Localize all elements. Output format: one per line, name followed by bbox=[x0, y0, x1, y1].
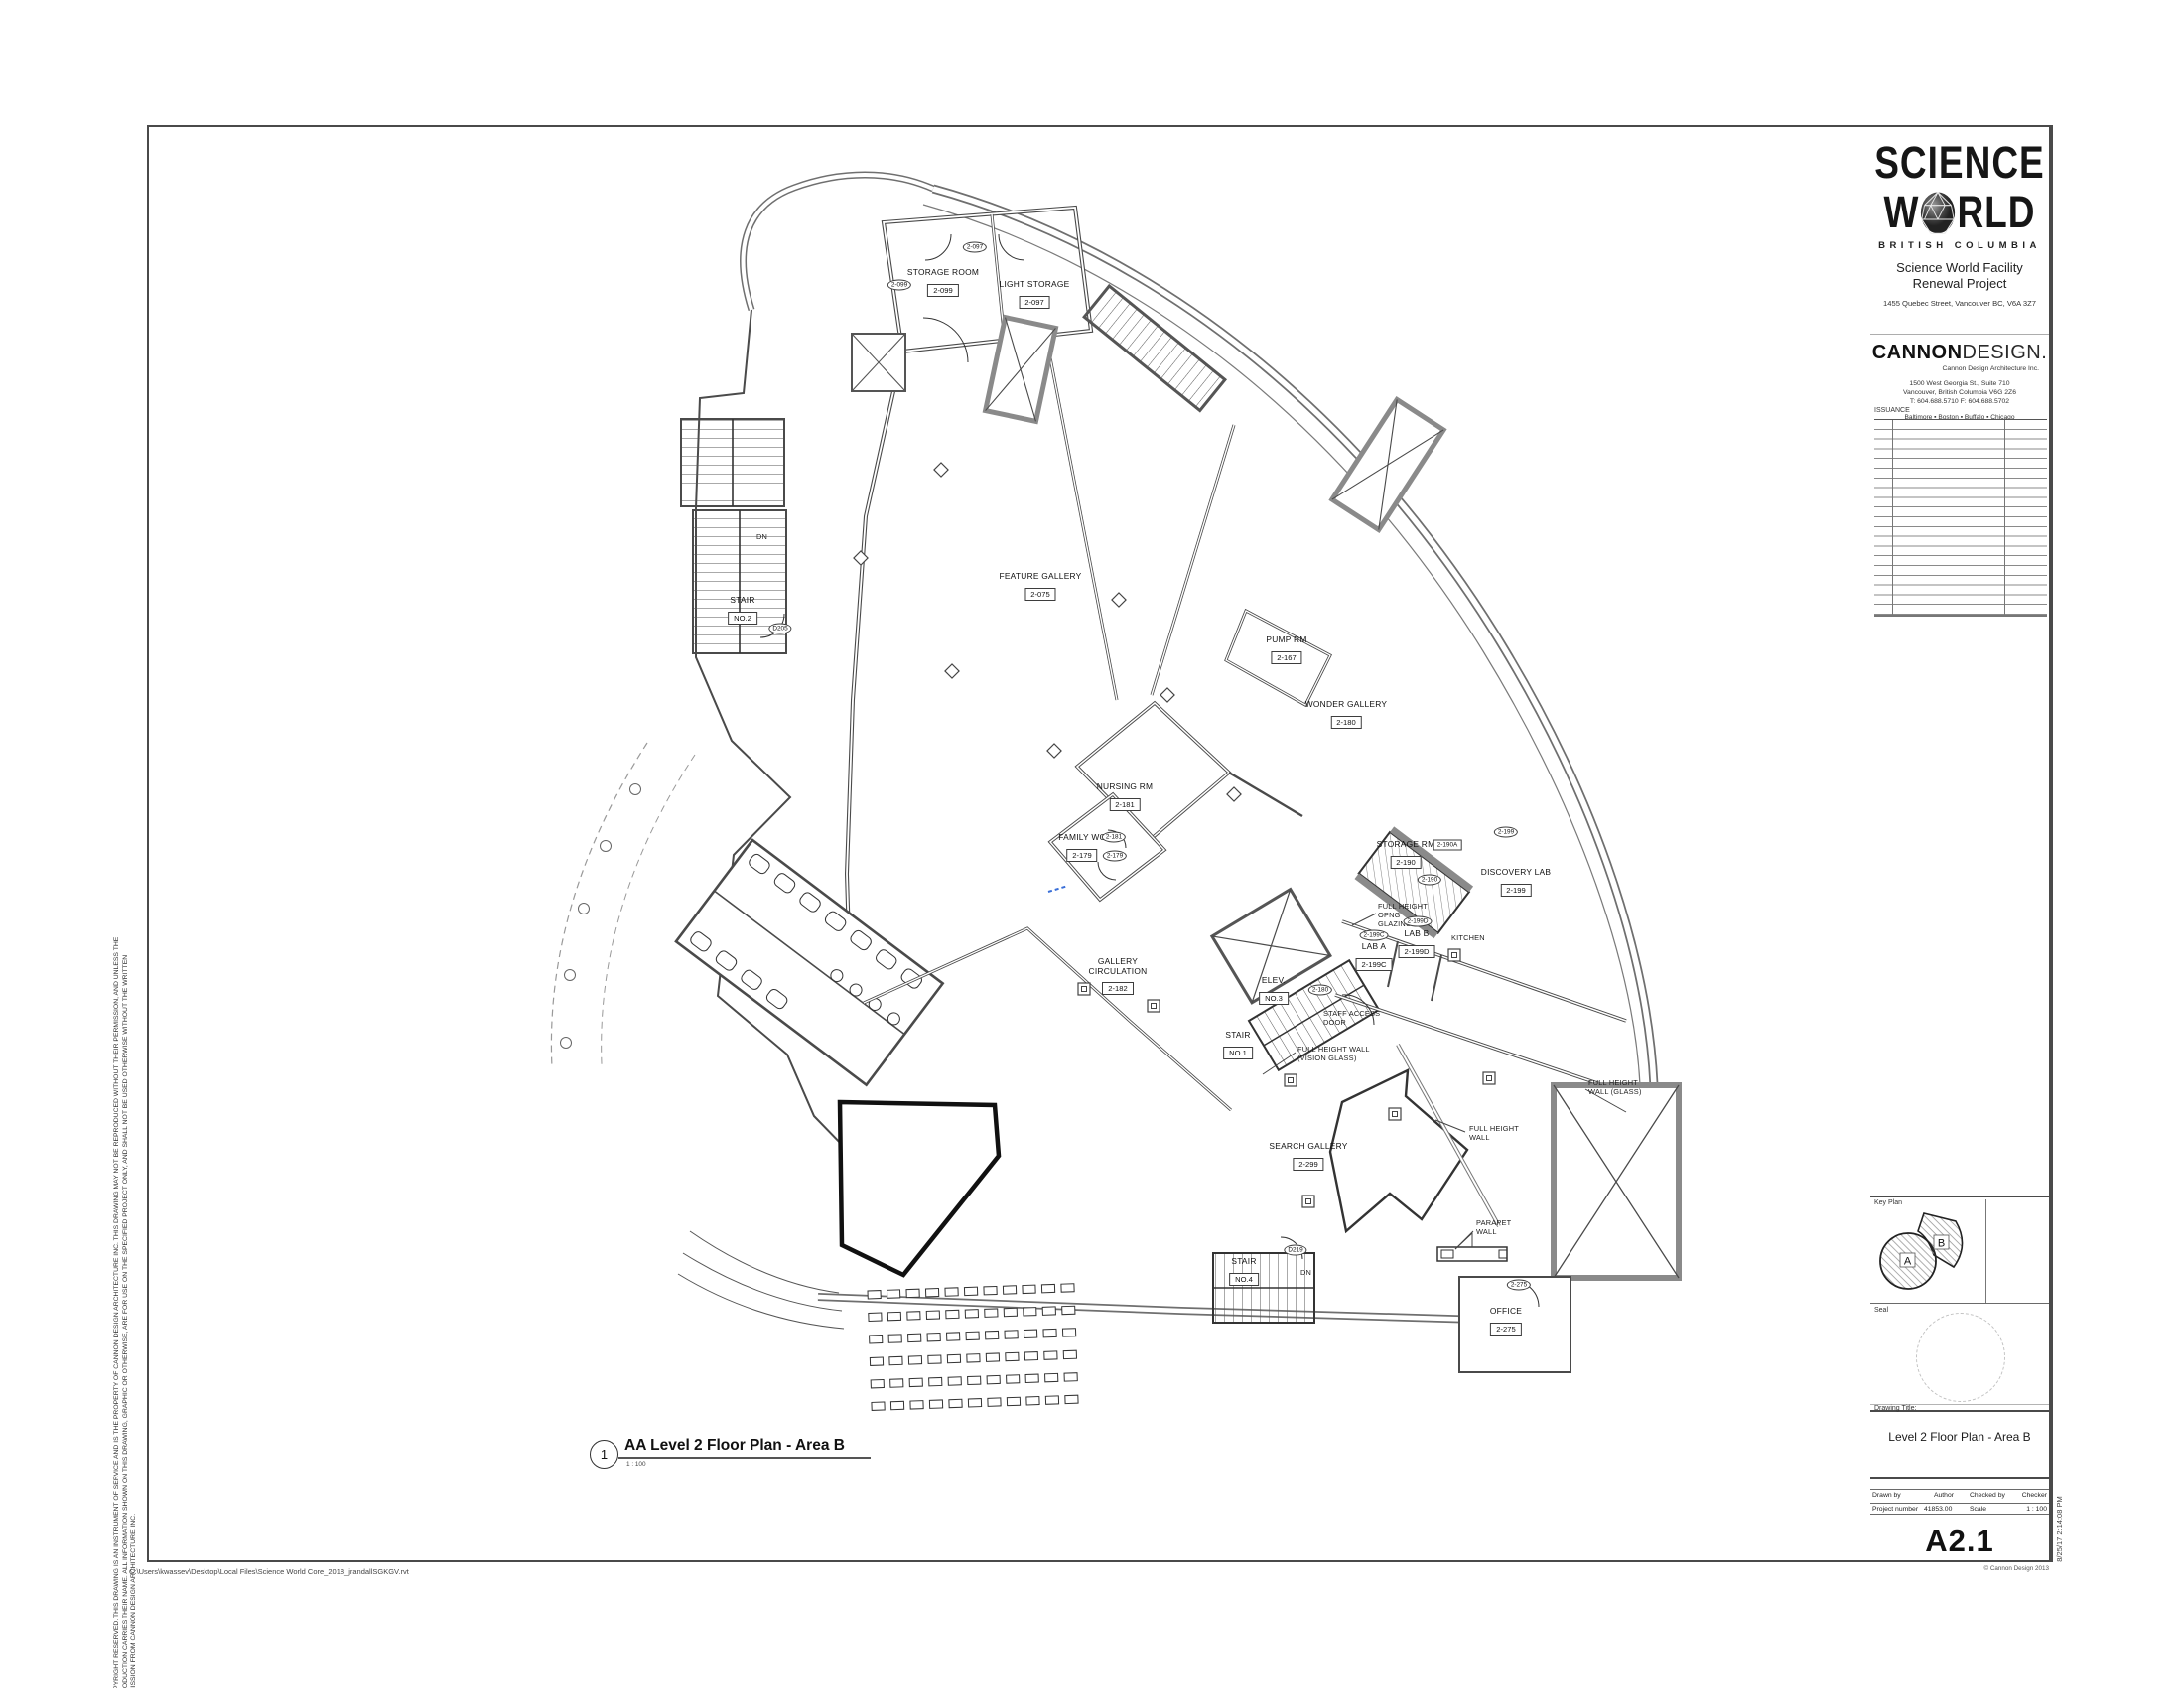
room-name: DISCOVERY LAB bbox=[1481, 868, 1551, 878]
note-label: KITCHEN bbox=[1451, 933, 1485, 942]
geodesic-dome-icon bbox=[1920, 191, 1956, 234]
firm-address-line1: 1500 West Georgia St., Suite 710 bbox=[1870, 379, 2049, 388]
room-number-tag: NO.3 bbox=[1259, 992, 1289, 1005]
room-label: STORAGE ROOM2-099 bbox=[907, 268, 979, 298]
room-name: LAB B bbox=[1399, 929, 1435, 939]
room-label: ELEV.NO.3 bbox=[1259, 976, 1289, 1006]
project-number-label: Project number bbox=[1872, 1506, 1924, 1513]
key-plan-label-b: B bbox=[1938, 1238, 1945, 1250]
room-name: NURSING RM bbox=[1097, 782, 1153, 792]
door-number-tag: 2-097 bbox=[963, 242, 987, 253]
room-number-tag: 2-099 bbox=[927, 284, 958, 297]
room-number-tag: NO.2 bbox=[728, 612, 757, 625]
room-number-tag: 2-167 bbox=[1271, 651, 1301, 664]
room-number-tag: NO.4 bbox=[1229, 1273, 1259, 1286]
room-number-tag: 2-097 bbox=[1019, 296, 1049, 309]
room-label: GALLERY CIRCULATION2-182 bbox=[1072, 957, 1163, 996]
room-name: ELEV. bbox=[1259, 976, 1289, 986]
room-number-tag: 2-181 bbox=[1109, 798, 1140, 811]
room-number-tag: 2-275 bbox=[1490, 1323, 1521, 1336]
cannondesign-logo: CANNONDESIGN. bbox=[1870, 342, 2049, 364]
note-label: FULL HEIGHTWALL (GLASS) bbox=[1588, 1078, 1642, 1096]
drawing-title-label: Drawing Title: bbox=[1870, 1405, 1916, 1412]
project-address: 1455 Quebec Street, Vancouver BC, V6A 3Z… bbox=[1870, 299, 2049, 308]
project-name-line2: Renewal Project bbox=[1870, 276, 2049, 292]
room-name: STORAGE RM bbox=[1377, 840, 1435, 850]
room-name: GALLERY CIRCULATION bbox=[1072, 957, 1163, 976]
science-world-logo-line1: SCIENCE bbox=[1870, 139, 2049, 188]
plan-labels-layer: STORAGE ROOM2-099LIGHT STORAGE2-097FEATU… bbox=[0, 0, 2184, 1688]
room-label: LAB B2-199D bbox=[1399, 929, 1435, 959]
drawing-title-block: Drawing Title: Level 2 Floor Plan - Area… bbox=[1870, 1404, 2049, 1444]
room-label: NURSING RM2-181 bbox=[1097, 782, 1153, 812]
room-name: OFFICE bbox=[1490, 1307, 1522, 1317]
note-label: DN bbox=[1300, 1268, 1311, 1277]
client-logo-block: SCIENCE W RLD BRITISH COLUMBIA Science W… bbox=[1870, 139, 2049, 308]
door-number-tag: 2-180 bbox=[1308, 985, 1332, 996]
note-label: DN bbox=[756, 532, 767, 541]
room-label: STAIRNO.4 bbox=[1229, 1257, 1259, 1287]
door-number-tag: 2-199C bbox=[1360, 930, 1389, 941]
project-number-value: 41853.00 bbox=[1924, 1506, 1970, 1513]
scale-label: Scale bbox=[1970, 1506, 2009, 1513]
room-label: DISCOVERY LAB2-199 bbox=[1481, 868, 1551, 898]
room-name: FEATURE GALLERY bbox=[999, 572, 1081, 582]
room-number-tag: 2-199D bbox=[1399, 945, 1435, 958]
drawn-by-label: Drawn by bbox=[1872, 1492, 1918, 1499]
room-label: STAIRNO.2 bbox=[728, 596, 757, 626]
note-label: FULL HEIGHT WALL(VISION GLASS) bbox=[1297, 1045, 1370, 1062]
issuance-table bbox=[1874, 419, 2047, 617]
room-name: LIGHT STORAGE bbox=[1000, 280, 1070, 290]
seal-circle bbox=[1916, 1313, 2005, 1402]
room-label: STAIRNO.1 bbox=[1223, 1031, 1253, 1060]
scale-value: 1 : 100 bbox=[2009, 1506, 2047, 1513]
room-number-tag: 2-190 bbox=[1390, 856, 1421, 869]
drawn-checked-row: Drawn by Author Checked by Checker bbox=[1872, 1492, 2047, 1499]
project-name-line1: Science World Facility bbox=[1870, 260, 2049, 276]
room-name: WONDER GALLERY bbox=[1305, 700, 1387, 710]
science-world-logo-line2: W RLD bbox=[1870, 189, 2049, 237]
project-scale-row: Project number 41853.00 Scale 1 : 100 bbox=[1872, 1506, 2047, 1513]
room-label: SEARCH GALLERY2-299 bbox=[1269, 1142, 1347, 1172]
drawing-callout: 1 AA Level 2 Floor Plan - Area B 1 : 100 bbox=[590, 1437, 871, 1469]
firm-phone: T: 604.688.5710 F: 604.688.5702 bbox=[1870, 397, 2049, 406]
door-number-tag: 2-199 bbox=[1494, 827, 1518, 838]
room-number-tag: 2-075 bbox=[1024, 588, 1055, 601]
room-label: LIGHT STORAGE2-097 bbox=[1000, 280, 1070, 310]
callout-scale: 1 : 100 bbox=[626, 1461, 871, 1468]
room-name: SEARCH GALLERY bbox=[1269, 1142, 1347, 1152]
callout-number: 1 bbox=[590, 1440, 618, 1469]
element-tag: 2-190A bbox=[1433, 840, 1462, 851]
callout-title: AA Level 2 Floor Plan - Area B bbox=[618, 1437, 871, 1459]
room-label: FEATURE GALLERY2-075 bbox=[999, 572, 1081, 602]
key-plan-block: Key Plan A B bbox=[1870, 1199, 2049, 1303]
door-number-tag: 2-179 bbox=[1103, 851, 1127, 862]
seal-block: Seal bbox=[1870, 1307, 2049, 1406]
firm-subtitle: Cannon Design Architecture Inc. bbox=[1870, 365, 2049, 372]
room-label: WONDER GALLERY2-180 bbox=[1305, 700, 1387, 730]
room-label: LAB A2-199C bbox=[1356, 942, 1393, 972]
checked-by-label: Checked by bbox=[1970, 1492, 2015, 1499]
key-plan-label-a: A bbox=[1904, 1256, 1912, 1268]
cannon-text: CANNON bbox=[1872, 342, 1963, 363]
logo-rld: RLD bbox=[1957, 189, 2035, 237]
design-text: DESIGN. bbox=[1963, 342, 2048, 363]
room-name: STAIR bbox=[728, 596, 757, 606]
drawing-title-text: Level 2 Floor Plan - Area B bbox=[1870, 1430, 2049, 1444]
firm-address: 1500 West Georgia St., Suite 710 Vancouv… bbox=[1870, 379, 2049, 406]
room-number-tag: 2-199C bbox=[1356, 958, 1393, 971]
room-name: STAIR bbox=[1229, 1257, 1259, 1267]
door-number-tag: 2-275 bbox=[1507, 1280, 1531, 1291]
room-label: STORAGE RM2-190 bbox=[1377, 840, 1435, 870]
checked-by-value: Checker bbox=[2015, 1492, 2047, 1499]
room-name: STORAGE ROOM bbox=[907, 268, 979, 278]
door-number-tag: 2-199D bbox=[1404, 916, 1433, 927]
room-number-tag: 2-180 bbox=[1330, 716, 1361, 729]
key-plan-map: A B bbox=[1872, 1205, 1983, 1301]
drawing-sheet: © COPYRIGHT RESERVED. THIS DRAWING IS AN… bbox=[0, 0, 2184, 1688]
room-number-tag: 2-199 bbox=[1500, 884, 1531, 897]
sheet-number: A2.1 bbox=[1870, 1523, 2049, 1559]
room-number-tag: 2-299 bbox=[1293, 1158, 1323, 1171]
door-number-tag: D205 bbox=[768, 624, 791, 634]
room-label: FAMILY WC2-179 bbox=[1058, 833, 1106, 863]
door-number-tag: D219 bbox=[1284, 1245, 1306, 1256]
note-label: FULL HEIGHTWALL bbox=[1469, 1124, 1519, 1142]
room-name: PUMP RM bbox=[1266, 635, 1306, 645]
logo-w: W bbox=[1884, 189, 1920, 237]
room-name: FAMILY WC bbox=[1058, 833, 1106, 843]
room-label: PUMP RM2-167 bbox=[1266, 635, 1306, 665]
issuance-label: ISSUANCE bbox=[1870, 407, 2049, 414]
door-number-tag: 2-190 bbox=[1418, 875, 1441, 886]
room-name: STAIR bbox=[1223, 1031, 1253, 1041]
room-name: LAB A bbox=[1356, 942, 1393, 952]
title-block: SCIENCE W RLD BRITISH COLUMBIA Science W… bbox=[1870, 125, 2053, 1562]
issuance-block: ISSUANCE bbox=[1870, 407, 2049, 414]
note-label: PARAPETWALL bbox=[1476, 1218, 1511, 1236]
room-label: OFFICE2-275 bbox=[1490, 1307, 1522, 1336]
room-number-tag: 2-182 bbox=[1102, 982, 1133, 995]
note-label: STAFF ACCESSDOOR bbox=[1323, 1009, 1380, 1027]
drawn-by-value: Author bbox=[1918, 1492, 1970, 1499]
room-number-tag: 2-179 bbox=[1066, 849, 1097, 862]
firm-address-line2: Vancouver, British Columbia V6G 2Z6 bbox=[1870, 388, 2049, 397]
door-number-tag: 2-181 bbox=[1102, 832, 1126, 843]
project-name: Science World Facility Renewal Project bbox=[1870, 260, 2049, 292]
room-number-tag: NO.1 bbox=[1223, 1047, 1253, 1059]
british-columbia-label: BRITISH COLUMBIA bbox=[1870, 240, 2049, 251]
